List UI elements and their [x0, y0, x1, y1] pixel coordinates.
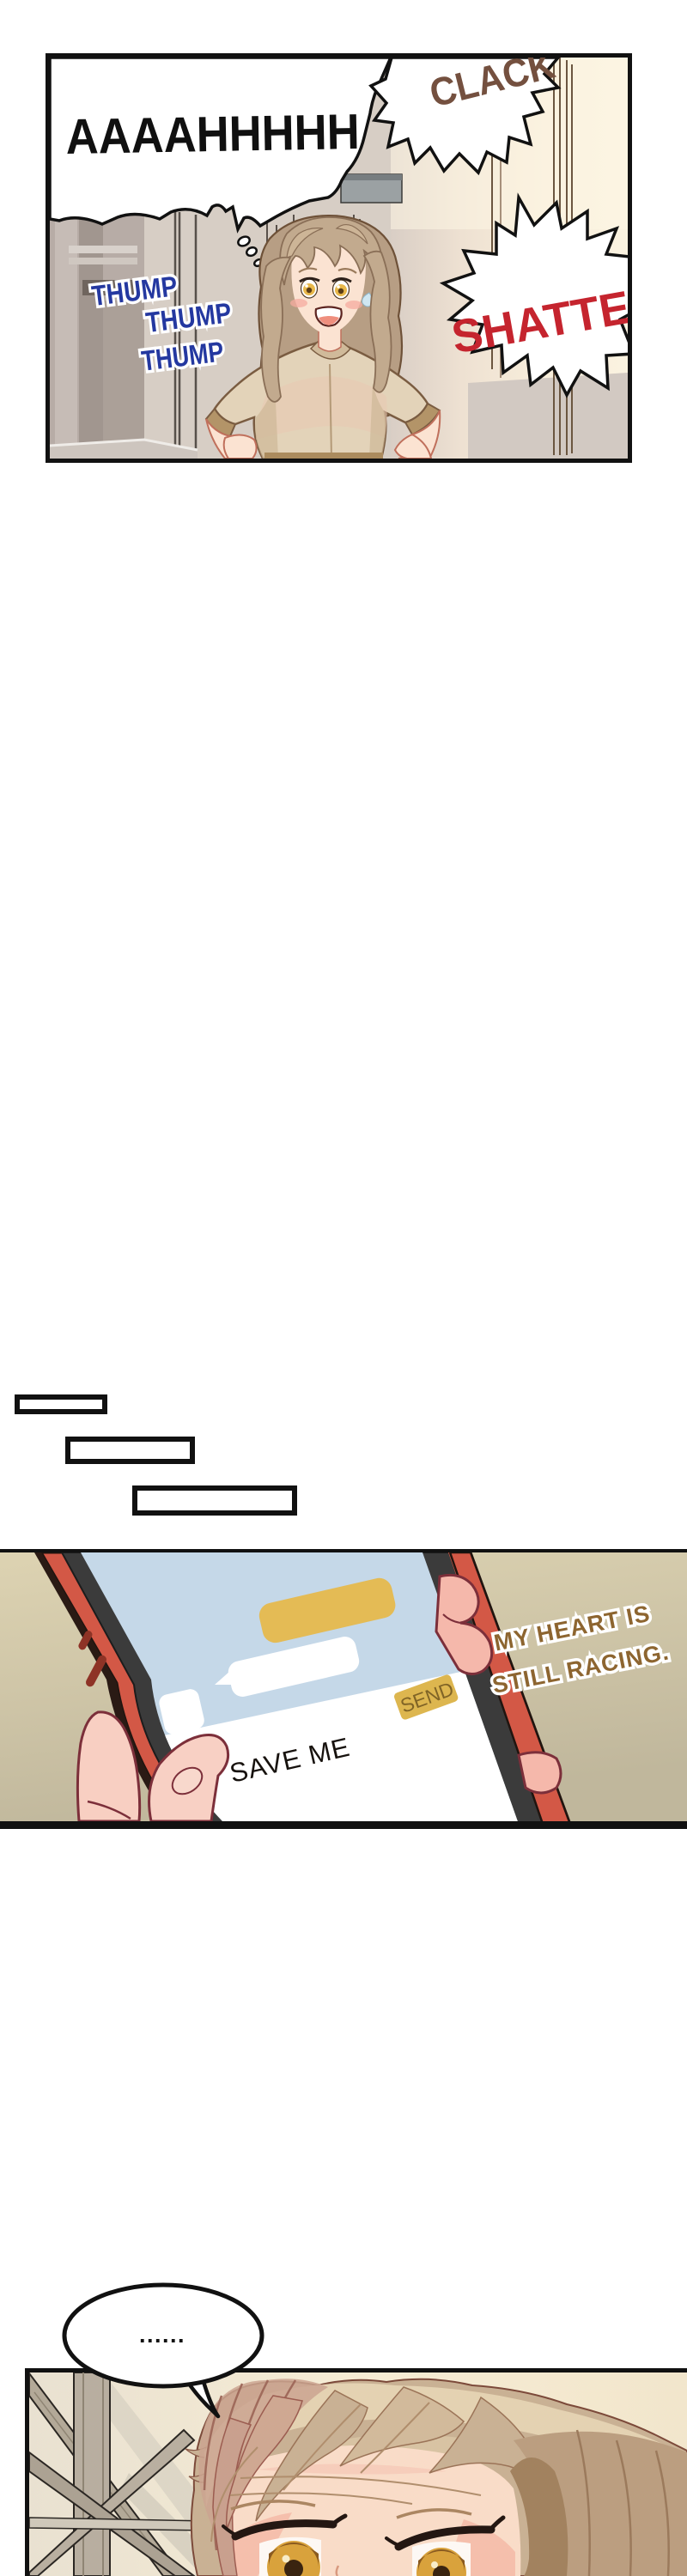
- svg-text:......: ......: [139, 2322, 185, 2348]
- svg-text:AAAAHHHHH: AAAAHHHHH: [65, 104, 360, 165]
